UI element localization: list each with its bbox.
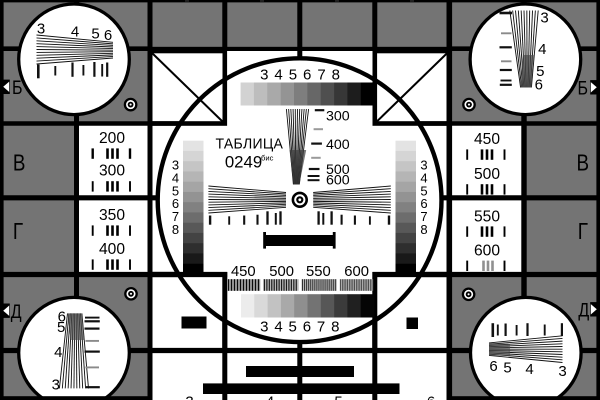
svg-text:4: 4 — [54, 344, 62, 361]
svg-text:7: 7 — [317, 67, 325, 84]
svg-text:550: 550 — [306, 264, 331, 280]
svg-text:350: 350 — [99, 207, 125, 224]
svg-text:5: 5 — [289, 318, 297, 335]
svg-text:Б: Б — [12, 77, 22, 99]
svg-text:450: 450 — [474, 131, 500, 148]
svg-text:Б: Б — [578, 77, 588, 99]
svg-text:Г: Г — [13, 220, 23, 245]
svg-text:3: 3 — [260, 67, 268, 84]
svg-text:3: 3 — [185, 394, 193, 400]
svg-text:400: 400 — [326, 137, 350, 153]
svg-text:5: 5 — [57, 319, 65, 336]
svg-text:бис: бис — [261, 154, 274, 163]
svg-text:Д: Д — [578, 299, 589, 321]
svg-text:В: В — [13, 151, 26, 176]
svg-text:550: 550 — [474, 209, 500, 226]
svg-text:3: 3 — [260, 318, 268, 335]
svg-text:4: 4 — [71, 23, 79, 40]
svg-text:300: 300 — [99, 163, 125, 180]
svg-text:5: 5 — [334, 394, 342, 400]
svg-text:3: 3 — [540, 10, 548, 27]
svg-text:4: 4 — [525, 361, 533, 378]
svg-text:5: 5 — [289, 67, 297, 84]
svg-text:3: 3 — [37, 21, 45, 38]
svg-text:600: 600 — [344, 264, 369, 280]
svg-text:6: 6 — [535, 77, 543, 94]
svg-text:500: 500 — [269, 264, 294, 280]
svg-text:600: 600 — [326, 173, 350, 189]
svg-text:0249: 0249 — [225, 153, 262, 172]
svg-text:6: 6 — [303, 67, 311, 84]
svg-text:600: 600 — [474, 243, 500, 260]
svg-text:5: 5 — [503, 360, 511, 377]
svg-text:7: 7 — [317, 318, 325, 335]
svg-text:Г: Г — [578, 220, 588, 245]
svg-text:300: 300 — [326, 108, 350, 124]
svg-text:500: 500 — [474, 166, 500, 183]
svg-text:8: 8 — [172, 222, 179, 237]
svg-text:В: В — [577, 151, 590, 176]
svg-text:400: 400 — [99, 241, 125, 258]
svg-text:8: 8 — [420, 222, 427, 237]
svg-text:3: 3 — [558, 363, 566, 380]
svg-text:6: 6 — [427, 394, 435, 400]
svg-text:3: 3 — [52, 377, 60, 394]
svg-text:4: 4 — [274, 318, 282, 335]
svg-text:8: 8 — [332, 67, 340, 84]
svg-text:8: 8 — [331, 318, 339, 335]
svg-text:4: 4 — [538, 41, 546, 58]
svg-text:6: 6 — [303, 318, 311, 335]
svg-text:6: 6 — [104, 27, 112, 44]
svg-text:6: 6 — [489, 358, 497, 375]
svg-text:ТАБЛИЦА: ТАБЛИЦА — [215, 136, 283, 153]
svg-text:Д: Д — [11, 300, 22, 322]
svg-text:4: 4 — [266, 394, 274, 400]
svg-text:200: 200 — [99, 130, 125, 147]
svg-text:4: 4 — [274, 67, 282, 84]
svg-text:5: 5 — [91, 25, 99, 42]
svg-text:450: 450 — [231, 264, 256, 280]
